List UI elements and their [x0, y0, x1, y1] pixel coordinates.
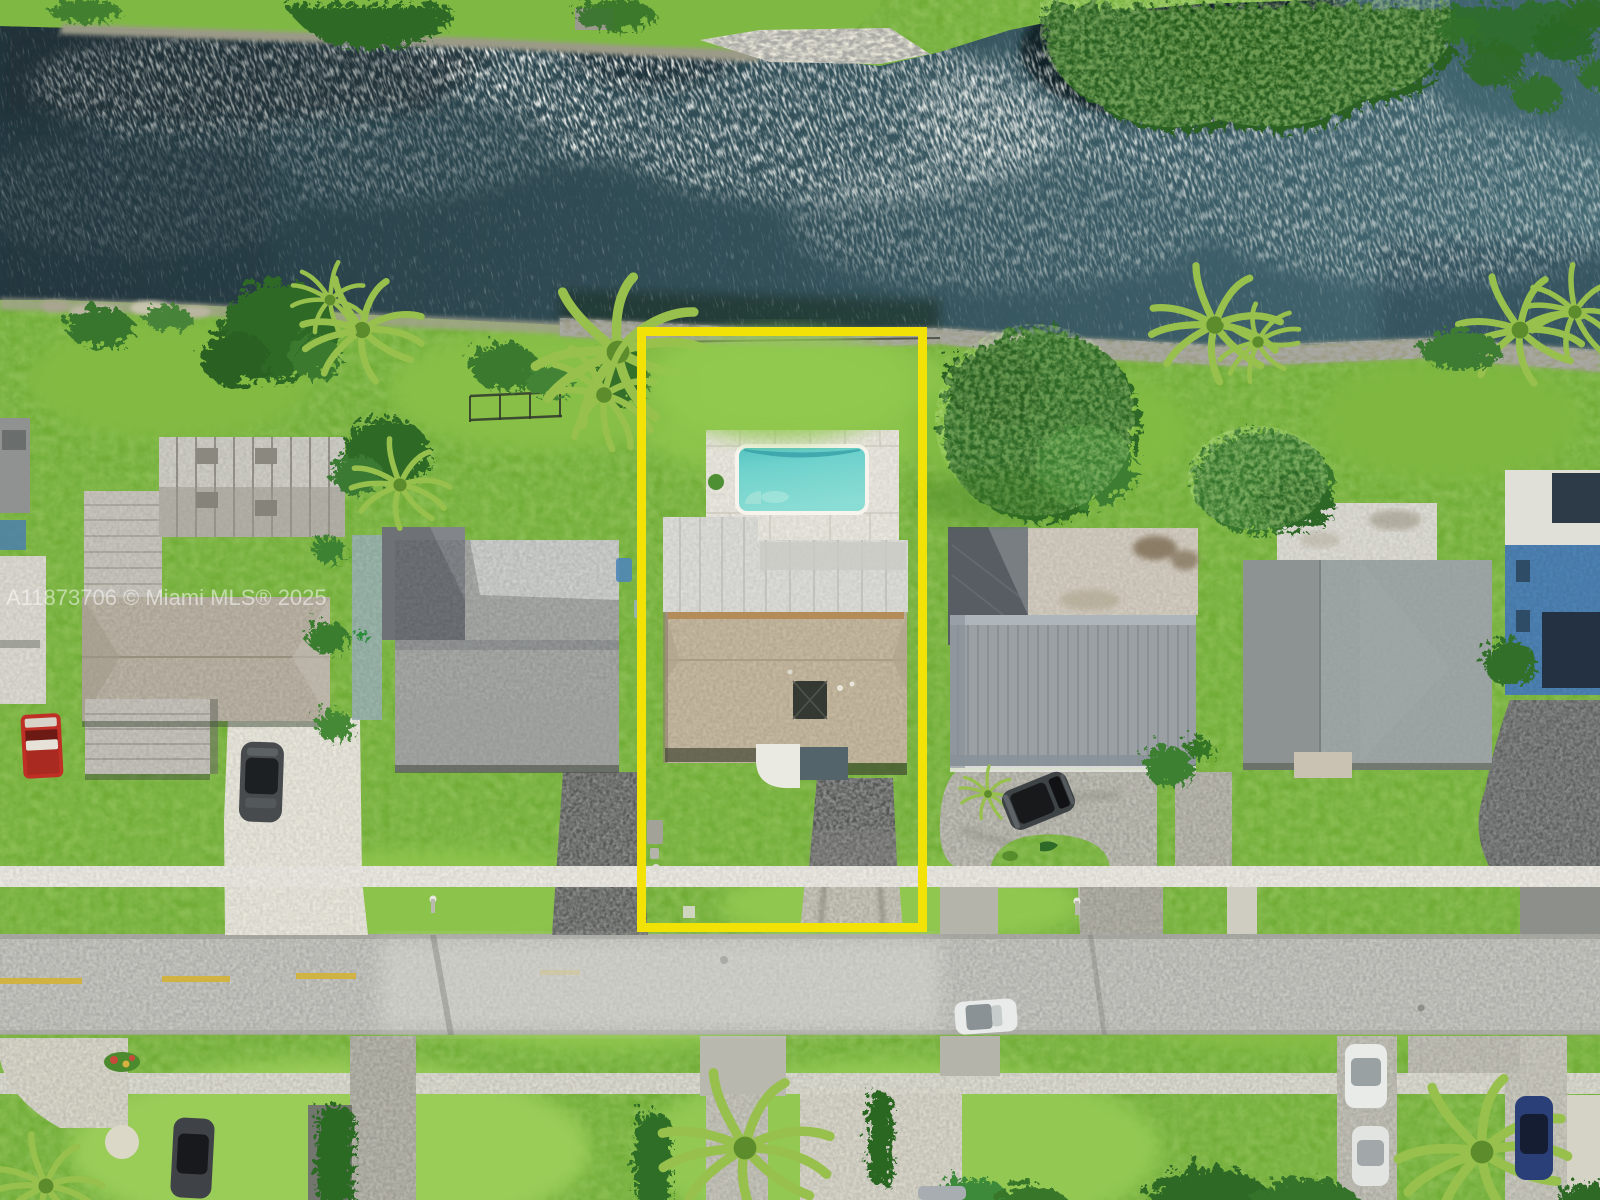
svg-text:A11873706 © Miami MLS® 2025: A11873706 © Miami MLS® 2025	[6, 585, 327, 610]
